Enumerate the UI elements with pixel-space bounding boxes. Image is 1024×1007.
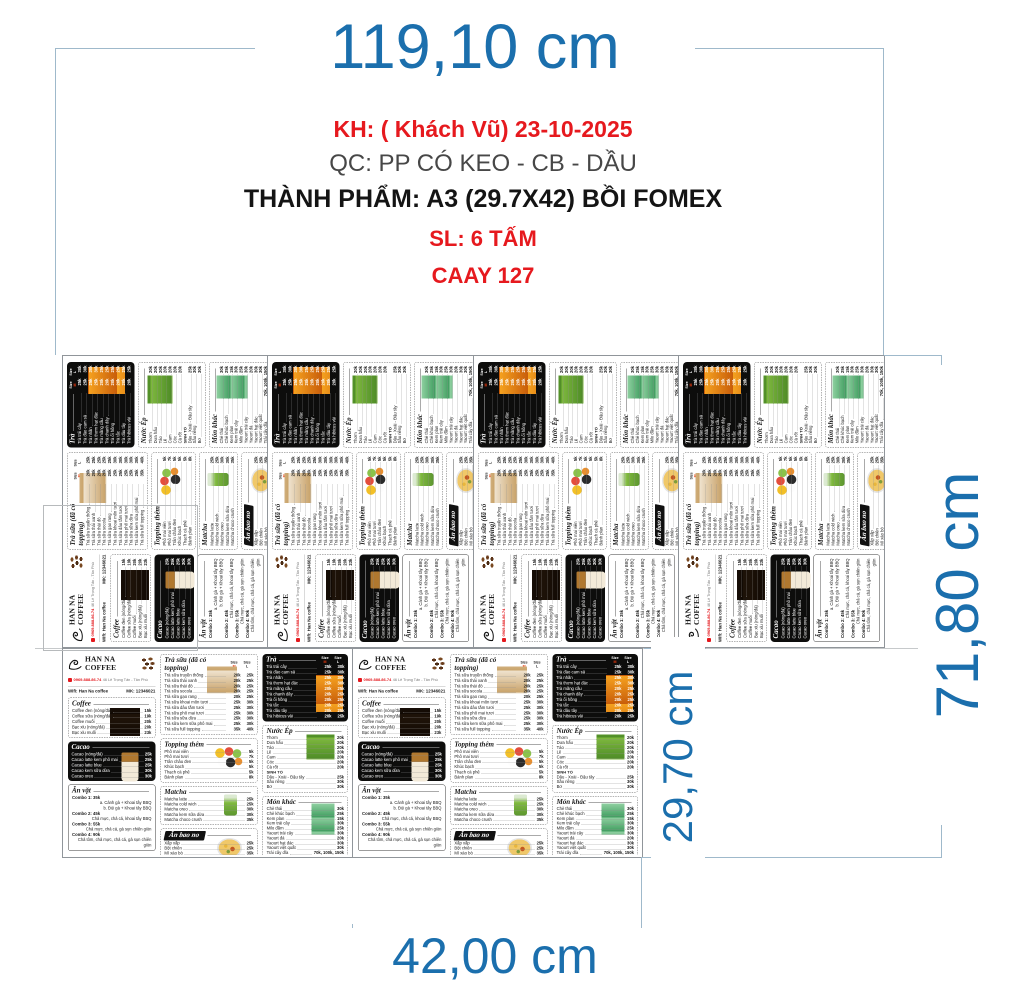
dotted-leader — [624, 465, 625, 521]
dotted-leader — [506, 484, 507, 512]
dotted-leader — [785, 567, 786, 606]
menu-item-price: 35k — [230, 456, 235, 463]
dotted-leader — [531, 393, 532, 430]
size-header: SizeL — [241, 661, 254, 669]
dotted-leader — [639, 374, 640, 413]
phone-icon — [68, 678, 72, 682]
menu-section-coffee: CoffeeCoffee đen (nóng/đá)15kCoffee sữa … — [68, 698, 155, 738]
section-title: Coffee — [729, 619, 737, 638]
title-rule — [295, 731, 341, 732]
menu-section-an_bao_no: Ăn bao noXấp xấp25kBột chiên25kMì xào bò… — [160, 829, 257, 856]
dotted-leader — [228, 374, 229, 413]
price-size-l: 25k — [127, 365, 133, 378]
size-header: SizeL — [485, 456, 493, 469]
dotted-leader — [228, 465, 229, 504]
dotted-leader — [303, 393, 304, 411]
dotted-leader — [481, 773, 537, 774]
menu-brand: HAN NA COFFEE — [272, 555, 292, 642]
title-rule — [363, 459, 364, 504]
title-rule — [278, 394, 279, 431]
wifi-name: Wifi: Han Na coffee — [358, 689, 398, 695]
section-title-row: Cacao — [362, 558, 370, 638]
dotted-leader — [125, 393, 126, 421]
dotted-leader — [574, 744, 625, 745]
dotted-leader — [403, 712, 433, 713]
dotted-leader — [834, 465, 835, 512]
dotted-leader — [807, 463, 808, 526]
dotted-leader — [520, 393, 521, 416]
dotted-leader — [596, 567, 597, 599]
menu-section-an_bao_no: Ăn bao noXấp xấp25kBột chiên25kMì xào bò… — [242, 452, 269, 549]
menu-item: Bạc xỉu muối23k — [72, 730, 151, 735]
address-text: 46 Lê Trọng Tấn - Tân Phú — [295, 562, 301, 607]
dotted-leader — [563, 754, 626, 755]
dotted-leader — [873, 465, 874, 529]
section-title-row: Matcha — [164, 788, 253, 796]
dotted-leader — [286, 783, 336, 784]
section-title: Ăn bao no — [163, 831, 205, 841]
proof-canvas: 119,10 cm 71,80 cm 29,70 cm 42,00 cm KH:… — [0, 0, 1024, 1007]
dotted-leader — [300, 484, 301, 512]
dotted-leader — [176, 374, 177, 434]
section-title: Trà — [69, 434, 77, 444]
section-title-row: Coffee — [362, 700, 441, 708]
menu-item-price: 23k — [144, 730, 151, 735]
dotted-leader — [189, 800, 245, 801]
dotted-leader — [291, 825, 335, 826]
wifi-password: MK: 12346021 — [718, 555, 724, 584]
dotted-leader — [286, 820, 336, 821]
brand-title: HAN NA COFFEE — [375, 655, 428, 672]
dotted-leader — [759, 484, 760, 508]
dotted-leader — [807, 374, 808, 403]
menu-item: Trà hibicus vải20k25k — [556, 714, 634, 720]
dotted-leader — [533, 484, 534, 505]
dotted-leader — [201, 374, 202, 436]
dotted-leader — [495, 676, 516, 677]
price-size-m: 35k — [550, 469, 555, 482]
dotted-leader — [500, 703, 516, 704]
menu-item: Mì xào bò35k — [880, 456, 884, 545]
menu-section-nuoc_ep: Nước ÉpThơm20kDưa hấu20kTáo20kLê20kCam20… — [553, 725, 638, 792]
combo-detail: Chả tôm, chả mực, chả cá, gà sụn chiên g… — [251, 559, 261, 638]
dotted-leader — [722, 484, 723, 516]
dotted-leader — [205, 676, 226, 677]
menu-item-name: Bạc xỉu muối — [362, 730, 386, 735]
coffee-beans-icon — [140, 657, 155, 671]
dotted-leader — [275, 749, 335, 750]
dotted-leader — [218, 465, 219, 512]
section-title-row: Cacao — [362, 744, 442, 752]
menu-item-price: 8k — [598, 456, 603, 461]
title-rule — [454, 459, 455, 503]
wifi-password: MK: 12346021 — [307, 555, 313, 584]
section-title: Cacao — [773, 620, 781, 638]
dotted-leader — [202, 730, 226, 731]
section-title-row: Ăn vặt — [72, 787, 151, 795]
dotted-leader — [590, 685, 608, 686]
dotted-leader — [587, 374, 588, 434]
menu-section-mon_khac: Món khácChè thái30kChè khúc bạch25kKem p… — [263, 796, 348, 855]
dotted-leader — [817, 374, 818, 436]
dotted-leader — [592, 374, 593, 430]
dotted-leader — [579, 712, 607, 713]
swan-logo-icon — [481, 627, 494, 642]
dotted-leader — [576, 820, 626, 821]
menu-column-left: HAN NA COFFEE0969.888.86.7446 Lê Trọng T… — [478, 555, 675, 642]
wifi-row: Wifi: Han Na coffeeMK: 12346021 — [716, 555, 724, 642]
dotted-leader — [705, 484, 706, 505]
menu-item: Bạc xỉu muối23k — [759, 559, 764, 638]
dotted-leader — [471, 844, 535, 845]
menu-column-right: TràSizeMSizeLTrà trái cây25k30kTrà đào c… — [67, 362, 264, 447]
menu-section-mon_khac: Món khácChè thái30kChè khúc bạch25kKem p… — [620, 362, 679, 447]
menu-wrapper: HAN NA COFFEE0969.888.86.7446 Lê Trọng T… — [679, 357, 884, 647]
menu-item-name: Bơ — [267, 785, 273, 790]
title-rule — [322, 561, 323, 616]
dotted-leader — [503, 393, 504, 426]
dotted-leader — [525, 393, 526, 421]
dotted-leader — [279, 739, 335, 740]
menu-panel-6[interactable]: HAN NA COFFEE0969.888.86.7446 Lê Trọng T… — [352, 648, 643, 858]
dotted-leader — [790, 567, 791, 591]
dotted-leader — [488, 805, 535, 806]
price-size-l: 25k — [743, 365, 749, 378]
menu-section-matcha: MatchaMatcha latte25kMatcha cold wich25k… — [199, 452, 238, 549]
dotted-leader — [579, 701, 607, 702]
dotted-leader — [484, 687, 516, 688]
menu-item-name: Cacao oreo — [597, 617, 602, 639]
wifi-name: Wifi: Han Na coffee — [513, 602, 519, 642]
phone-icon — [707, 638, 711, 642]
swan-logo-icon — [68, 657, 83, 670]
menu-section-nuoc_ep: Nước ÉpThơm20kDưa hấu20kTáo20kLê20kCam20… — [549, 362, 616, 447]
dotted-leader — [114, 393, 115, 421]
menu-item-price: 30k — [435, 773, 442, 778]
dotted-leader — [582, 463, 583, 520]
dotted-leader — [479, 800, 535, 801]
section-title-row: Ăn bao no — [655, 456, 665, 545]
title-rule — [204, 561, 205, 617]
menu-item-price: 8k — [187, 456, 192, 461]
dotted-leader — [757, 567, 758, 604]
dotted-leader — [401, 374, 402, 424]
title-rule — [93, 791, 149, 792]
dotted-leader — [190, 752, 247, 753]
dotted-leader — [336, 393, 337, 416]
dotted-leader — [391, 463, 392, 519]
menu-column-middle: Trà sữa (đã có topping)SizeMSizeLTrà sữa… — [272, 452, 469, 549]
dotted-leader — [565, 749, 625, 750]
section-title: Coffee — [362, 700, 381, 708]
section-title: Ăn vặt — [72, 787, 91, 795]
dotted-leader — [644, 374, 645, 424]
menu-section-tra: TràSizeMSizeLTrà trái cây25k30kTrà đào c… — [683, 362, 751, 447]
menu-brand: HAN NA COFFEE — [683, 555, 703, 642]
dotted-leader — [749, 484, 750, 513]
menu-item: Trái cây dĩa70k, 100k, 150k — [267, 851, 344, 855]
menu-panel-4[interactable]: HAN NA COFFEE0969.888.86.7446 Lê Trọng T… — [678, 355, 885, 648]
dotted-leader — [330, 567, 331, 597]
menu-item: Bơ30k — [609, 366, 614, 443]
menu-item-name: Bánh plan — [803, 527, 808, 546]
dotted-leader — [409, 761, 433, 762]
dotted-leader — [536, 567, 537, 597]
combo-detail: Chả tôm, chả mực, chả cá, gà sụn chiên g… — [456, 559, 466, 638]
menu-item: Trà hibicus vải20k25k — [127, 365, 133, 443]
section-title: Ăn vặt — [200, 619, 208, 638]
dotted-leader — [362, 374, 363, 425]
size-l-label: L — [282, 462, 287, 464]
section-title: Matcha — [612, 523, 620, 545]
dotted-leader — [387, 734, 432, 735]
section-title: Trà — [274, 434, 282, 444]
menu-item: Cacao oreo30k — [391, 558, 396, 638]
menu-section-nuoc_ep: Nước ÉpThơm20kDưa hấu20kTáo20kLê20kCam20… — [138, 362, 205, 447]
dotted-leader — [716, 484, 717, 516]
menu-item-name: Trà hibicus vải — [266, 714, 293, 720]
menu-wrapper: HAN NA COFFEE0969.888.86.7446 Lê Trọng T… — [63, 650, 353, 855]
combo-detail: Chả tôm, chả mực, chả cá, gà sụn chiên g… — [72, 838, 151, 848]
menu-item-price: 30k — [609, 366, 614, 373]
brand-title: HAN NA COFFEE — [479, 572, 496, 625]
dotted-leader — [536, 393, 537, 421]
dotted-leader — [792, 374, 793, 434]
menu-item: Bạc xỉu muối23k — [554, 559, 559, 638]
dotted-leader — [186, 768, 248, 769]
title-rule — [660, 459, 661, 503]
menu-section-matcha: MatchaMatcha latte25kMatcha cold wich25k… — [815, 452, 854, 549]
menu-item-name: Bánh plan — [454, 774, 473, 779]
dotted-leader — [473, 849, 535, 850]
dotted-leader — [773, 374, 774, 425]
dotted-leader — [601, 567, 602, 616]
section-title-row: Ăn bao no — [860, 456, 870, 545]
menu-item-name: Cacao oreo — [391, 617, 396, 639]
menu-item: Cacao oreo30k — [72, 773, 152, 778]
dotted-leader — [741, 393, 742, 421]
dotted-leader — [181, 844, 245, 845]
menu-section-tra_sua: Trà sữa (đã có topping)SizeMSizeLTrà sữa… — [160, 654, 257, 735]
section-title-row: Ăn vặt — [405, 559, 413, 638]
dotted-leader — [493, 821, 535, 822]
dotted-leader — [292, 393, 293, 413]
menu-item: Trà sữa full topping35k40k — [755, 456, 760, 545]
dotted-leader — [393, 766, 433, 767]
dotted-leader — [496, 815, 535, 816]
menu-panel-5[interactable]: HAN NA COFFEE0969.888.86.7446 Lê Trọng T… — [62, 648, 353, 858]
menu-item-name: Cacao oreo — [362, 773, 384, 778]
dotted-leader — [214, 725, 226, 726]
dotted-leader — [492, 730, 516, 731]
dotted-leader — [381, 374, 382, 434]
dotted-leader — [428, 465, 429, 521]
menu-item: Mì xào bò35k — [454, 851, 543, 855]
dotted-leader — [509, 393, 510, 411]
section-title-row: TràSizeMSizeL — [685, 365, 693, 443]
dotted-leader — [390, 567, 391, 599]
menu-section-coffee: CoffeeCoffee đen (nóng/đá)15kCoffee sữa … — [522, 555, 562, 642]
menu-section-an_bao_no: Ăn bao noXấp xấp25kBột chiên25kMì xào bò… — [858, 452, 885, 549]
title-rule — [189, 792, 251, 793]
dotted-leader — [203, 821, 245, 822]
dotted-leader — [452, 374, 453, 415]
menu-section-mon_khac: Món khácChè thái30kChè khúc bạch25kKem p… — [825, 362, 884, 447]
menu-item-price: 30k — [802, 558, 807, 565]
dotted-leader — [778, 374, 779, 434]
dotted-leader — [311, 484, 312, 516]
menu-section-tra: TràSizeMSizeLTrà trái cây25k30kTrà đào c… — [478, 362, 546, 447]
dotted-leader — [708, 393, 709, 426]
swan-logo-icon — [275, 627, 288, 642]
size-header: SizeM — [319, 656, 332, 664]
dotted-leader — [394, 756, 433, 757]
dotted-leader — [336, 567, 337, 597]
menu-item: Matcha choco crush35k — [230, 456, 235, 545]
price-size-l: 25k — [622, 714, 635, 720]
customer-note: KH: ( Khách Vũ) 23-10-2025 — [0, 116, 966, 143]
menu-item-name: Trái cây dĩa — [880, 422, 884, 444]
dotted-leader — [476, 768, 538, 769]
dotted-leader — [883, 398, 884, 420]
menu-item: Trà sữa full topping35k40k — [550, 456, 555, 545]
dotted-leader — [386, 374, 387, 430]
title-rule — [410, 459, 411, 521]
dotted-leader — [184, 854, 245, 855]
section-title: Coffee — [524, 619, 532, 638]
menu-item-name: Matcha choco crush — [230, 508, 235, 545]
menu-item: Bơ30k — [403, 366, 408, 443]
section-title-row: Ăn vặt — [816, 559, 824, 638]
dotted-leader — [193, 763, 248, 764]
menu-column-left: HAN NA COFFEE0969.888.86.7446 Lê Trọng T… — [68, 654, 155, 851]
menu-item: Cacao oreo30k — [597, 558, 602, 638]
menu-section-mon_khac: Món khácChè thái30kChè khúc bạch25kKem p… — [209, 362, 268, 447]
menu-item: Cacao oreo30k — [802, 558, 807, 638]
menu-item-price: 35k — [641, 456, 646, 463]
menu-item: Trà hibicus vải20k25k — [332, 365, 338, 443]
dotted-leader — [574, 679, 607, 680]
dotted-leader — [293, 690, 317, 691]
dotted-leader — [732, 484, 733, 500]
section-title-row: Ăn bao no — [244, 456, 254, 545]
dotted-leader — [300, 685, 318, 686]
dotted-leader — [554, 484, 555, 508]
price-size-l: 25k — [538, 365, 544, 378]
menu-item-price: 30k — [145, 773, 152, 778]
price-size-l: 40k — [550, 456, 555, 469]
dotted-leader — [119, 761, 143, 762]
swan-logo-icon — [358, 657, 373, 670]
menu-section-matcha: MatchaMatcha latte25kMatcha cold wich25k… — [450, 786, 547, 825]
menu-item: Bánh plan8k — [164, 774, 253, 779]
title-rule — [249, 459, 250, 503]
section-title: Ăn bao no — [453, 831, 495, 841]
dotted-leader — [96, 723, 143, 724]
section-title: Topping thêm — [454, 741, 494, 749]
section-title: Matcha — [406, 523, 414, 545]
dotted-leader — [120, 393, 121, 430]
dotted-leader — [741, 567, 742, 597]
dotted-leader — [87, 393, 88, 413]
dotted-leader — [787, 374, 788, 433]
dotted-leader — [812, 374, 813, 424]
contact-row: 0969.888.86.7446 Lê Trọng Tấn - Tân Phú — [706, 555, 712, 642]
dotted-leader — [81, 393, 82, 422]
dotted-leader — [602, 463, 603, 526]
title-rule — [383, 704, 438, 705]
dotted-leader — [697, 393, 698, 422]
dotted-leader — [496, 709, 517, 710]
menu-item-name: Matcha choco crush — [641, 508, 646, 545]
section-title-row: Ăn bao no — [454, 831, 543, 841]
dotted-leader — [668, 465, 669, 529]
dotted-leader — [844, 374, 845, 413]
dotted-leader — [585, 834, 626, 835]
menu-section-an_bao_no: Ăn bao noXấp xấp25kBột chiên25kMì xào bò… — [447, 452, 474, 549]
combo-detail: Chả tôm, chả mực, chả cá, gà sụn chiên g… — [867, 559, 877, 638]
dotted-leader — [376, 463, 377, 520]
menu-panel-3[interactable]: HAN NA COFFEE0969.888.86.7446 Lê Trọng T… — [473, 355, 680, 648]
dotted-leader — [401, 772, 433, 773]
menu-section-topping: Topping thêmPhô mai viên5kPhô mai tươi7k… — [450, 738, 547, 782]
dotted-leader — [584, 696, 607, 697]
menu-section-an_bao_no: Ăn bao noXấp xấp25kBột chiên25kMì xào bò… — [653, 452, 680, 549]
section-title-row: Coffee — [318, 559, 326, 638]
dotted-leader — [384, 567, 385, 607]
section-title-row: Ăn bao no — [449, 456, 459, 545]
dotted-leader — [467, 465, 468, 527]
menu-brand: HAN NA COFFEE — [68, 654, 155, 674]
size-l-label: L — [693, 462, 698, 464]
phone-number: 0969.888.86.74 — [364, 677, 392, 683]
dotted-leader — [542, 393, 543, 416]
menu-item-price: 70k, 100k, 150k — [604, 851, 634, 855]
dotted-leader — [395, 567, 396, 616]
menu-panel-2[interactable]: HAN NA COFFEE0969.888.86.7446 Lê Trọng T… — [267, 355, 474, 648]
dotted-leader — [488, 698, 516, 699]
menu-section-tra: TràSizeMSizeLTrà trái cây25k30kTrà đào c… — [67, 362, 135, 447]
menu-artwork: HAN NA COFFEE0969.888.86.7446 Lê Trọng T… — [268, 357, 473, 647]
dotted-leader — [517, 484, 518, 516]
dotted-leader — [514, 393, 515, 417]
section-title: Ăn vặt — [611, 619, 619, 638]
menu-section-topping: Topping thêmPhô mai viên5kPhô mai tươi7k… — [160, 738, 257, 782]
dotted-leader — [103, 393, 104, 417]
dotted-leader — [294, 718, 317, 719]
size-header: SizeL — [480, 365, 488, 378]
dotted-leader — [343, 484, 344, 496]
dotted-leader — [863, 374, 864, 415]
contact-row: 0969.888.86.7446 Lê Trọng Tấn - Tân Phú — [295, 555, 301, 642]
menu-item: Trà sữa full topping35k40k — [344, 456, 349, 545]
dotted-leader — [297, 674, 317, 675]
brand-title: HAN NA COFFEE — [273, 572, 290, 625]
dotted-leader — [738, 484, 739, 505]
menu-section-cacao: CacaoCacao (nóng/đá)25kCacao latte kem p… — [358, 742, 445, 781]
dotted-leader — [183, 849, 245, 850]
menu-item-name: Bánh plan — [598, 527, 603, 546]
dotted-leader — [839, 465, 840, 521]
dotted-leader — [480, 752, 537, 753]
dotted-leader — [433, 374, 434, 413]
menu-brand: HAN NA COFFEE — [358, 654, 445, 674]
menu-section-mon_khac: Món khácChè thái30kChè khúc bạch25kKem p… — [414, 362, 473, 447]
dotted-leader — [95, 777, 144, 778]
dotted-leader — [563, 374, 564, 430]
dotted-leader — [385, 777, 434, 778]
selection-rect-artifact — [43, 505, 198, 651]
